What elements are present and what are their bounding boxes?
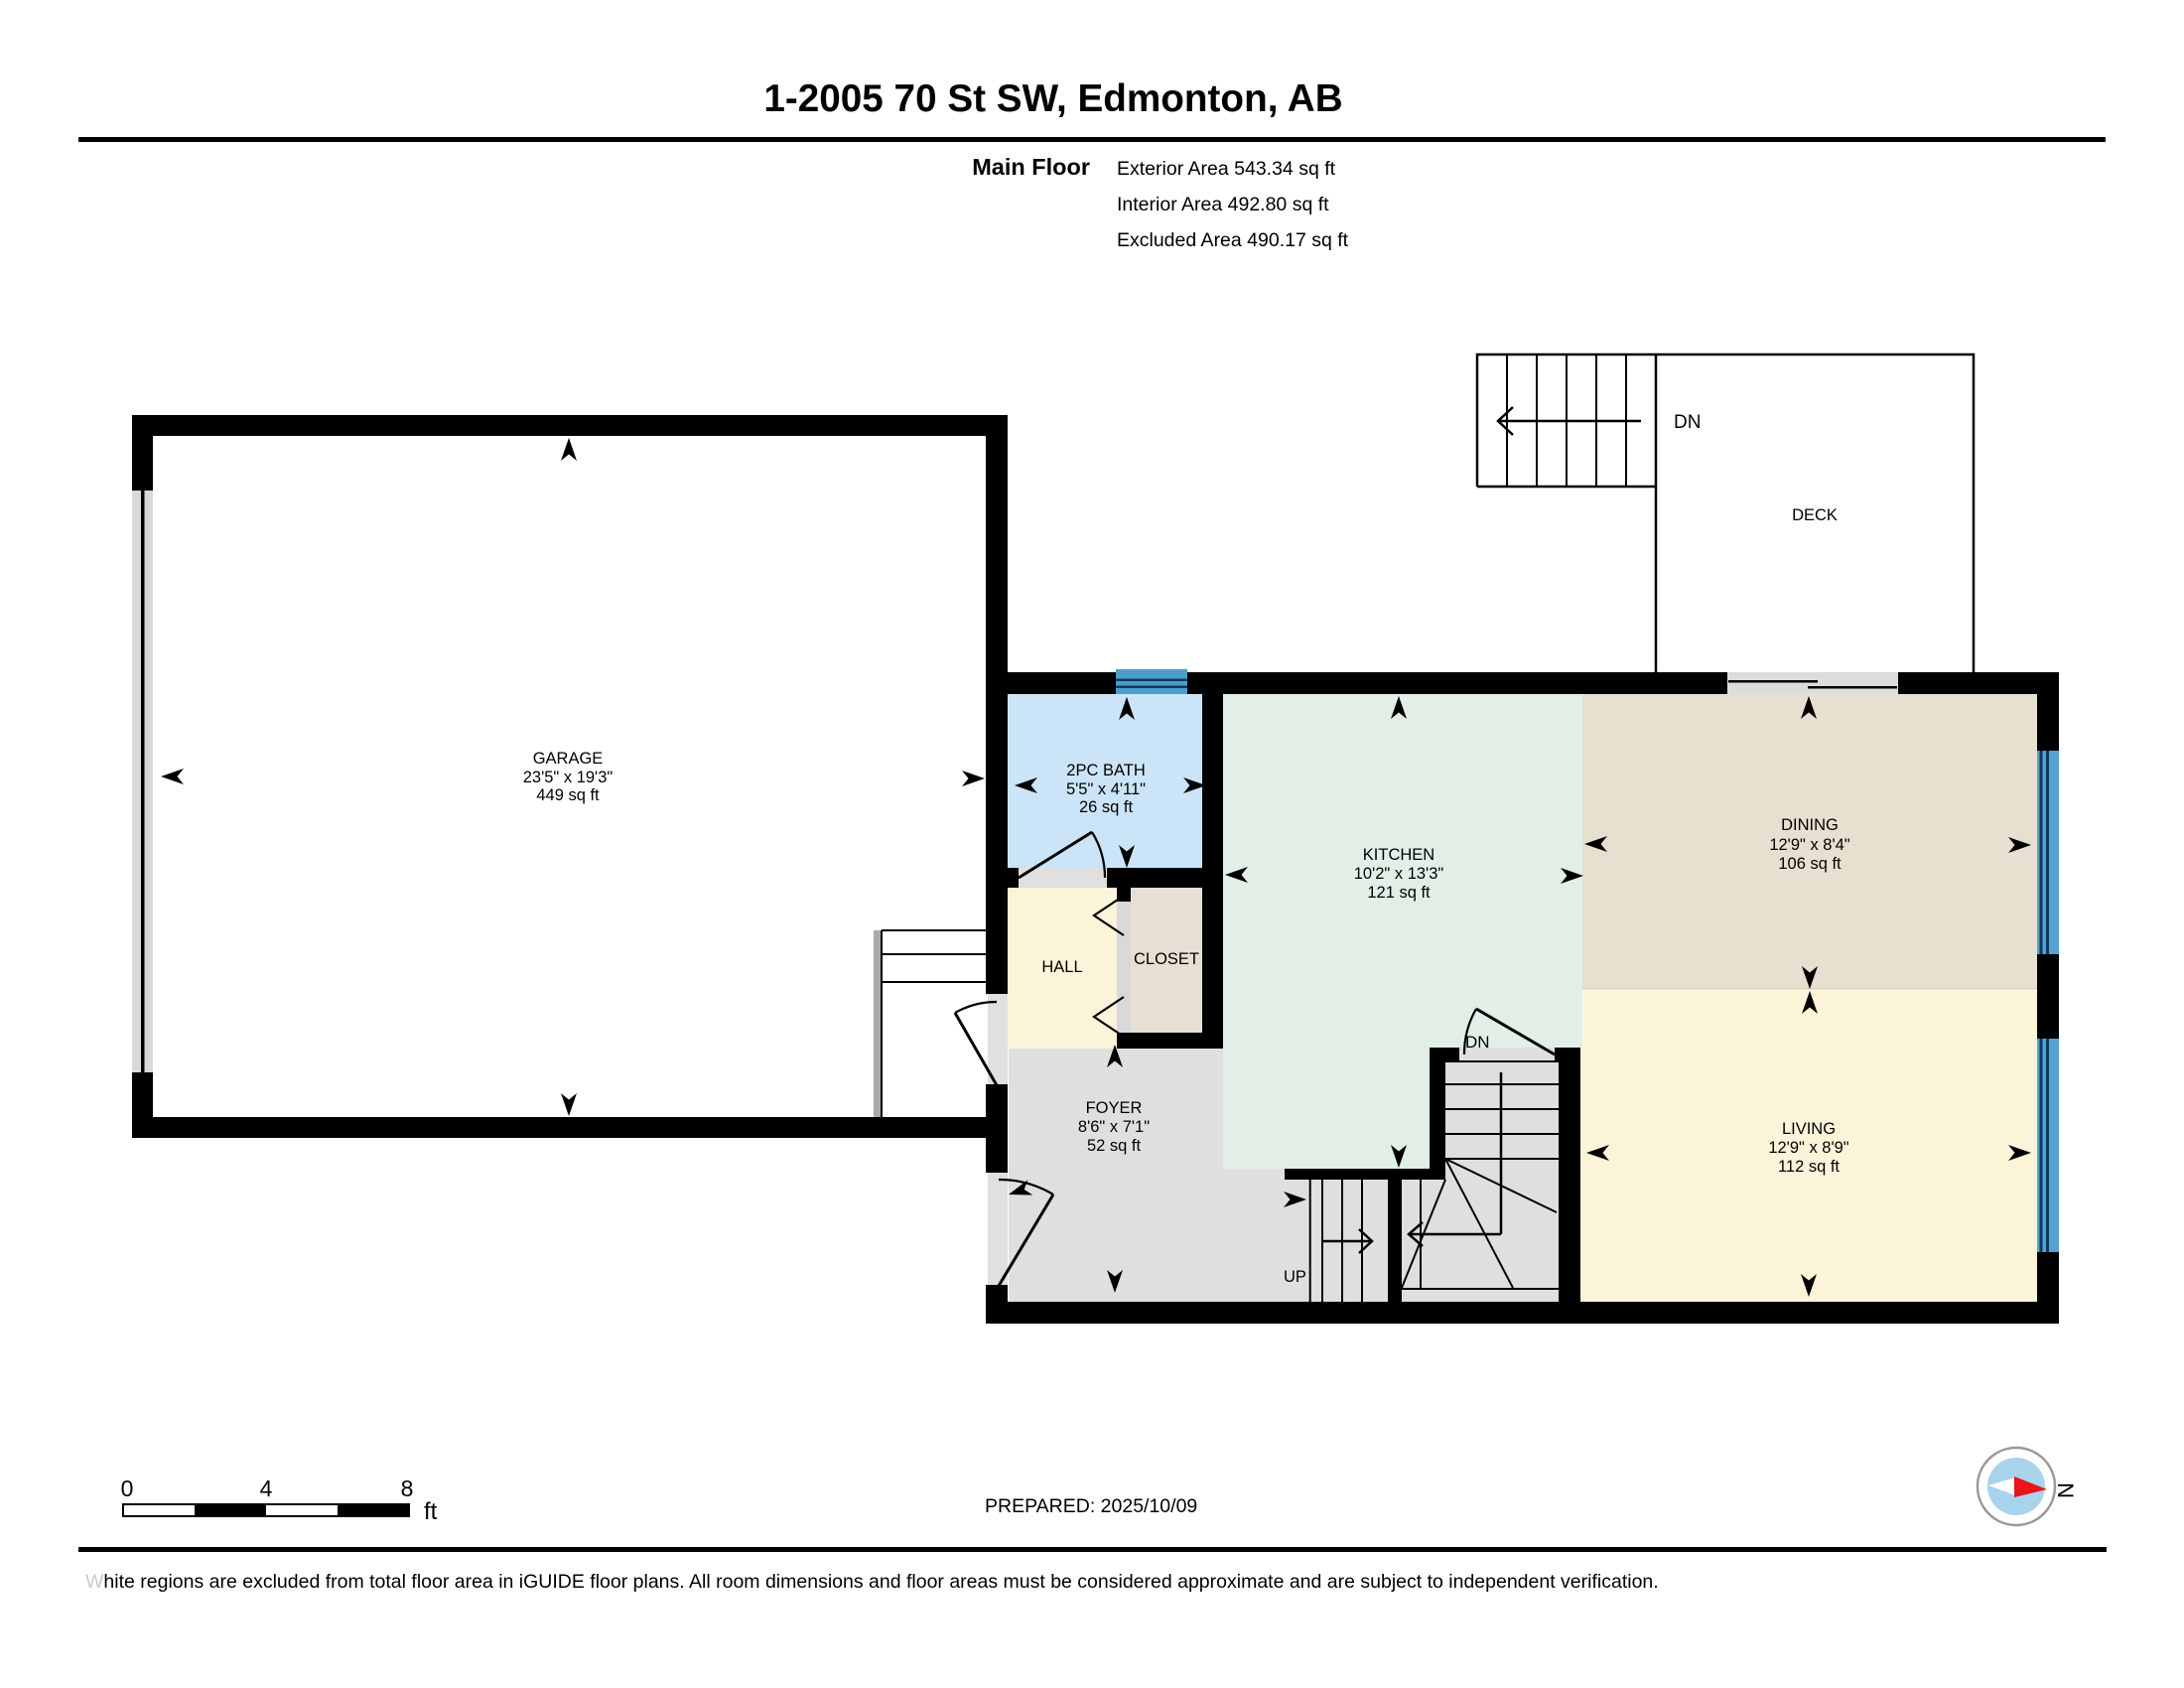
svg-text:UP: UP — [1284, 1268, 1306, 1286]
svg-text:Excluded Area 490.17 sq ft: Excluded Area 490.17 sq ft — [1117, 229, 1349, 251]
svg-text:106 sq ft: 106 sq ft — [1778, 855, 1842, 873]
svg-text:LIVING: LIVING — [1782, 1120, 1836, 1138]
svg-text:52 sq ft: 52 sq ft — [1087, 1137, 1142, 1155]
svg-text:112 sq ft: 112 sq ft — [1778, 1158, 1840, 1176]
svg-text:DN: DN — [1674, 412, 1701, 433]
svg-text:5'5" x 4'11": 5'5" x 4'11" — [1066, 780, 1146, 798]
svg-text:N: N — [2053, 1482, 2078, 1498]
svg-text:26 sq ft: 26 sq ft — [1079, 798, 1134, 816]
svg-text:Exterior Area 543.34 sq ft: Exterior Area 543.34 sq ft — [1117, 158, 1336, 180]
svg-text:12'9" x 8'4": 12'9" x 8'4" — [1769, 836, 1849, 854]
svg-text:FOYER: FOYER — [1086, 1099, 1143, 1117]
svg-text:DN: DN — [1465, 1033, 1490, 1052]
svg-text:23'5" x 19'3": 23'5" x 19'3" — [523, 769, 614, 786]
svg-text:4: 4 — [260, 1476, 273, 1501]
svg-text:449 sq ft: 449 sq ft — [536, 786, 600, 804]
svg-text:Interior Area 492.80 sq ft: Interior Area 492.80 sq ft — [1117, 194, 1329, 215]
svg-text:1-2005 70 St SW, Edmonton, AB: 1-2005 70 St SW, Edmonton, AB — [763, 77, 1342, 120]
svg-text:10'2" x 13'3": 10'2" x 13'3" — [1354, 865, 1444, 883]
svg-text:12'9" x 8'9": 12'9" x 8'9" — [1768, 1139, 1848, 1157]
svg-text:Main Floor: Main Floor — [972, 154, 1090, 180]
svg-text:GARAGE: GARAGE — [533, 750, 604, 768]
svg-text:PREPARED: 2025/10/09: PREPARED: 2025/10/09 — [985, 1495, 1197, 1517]
svg-text:ft: ft — [424, 1498, 438, 1525]
svg-text:0: 0 — [121, 1476, 134, 1501]
svg-text:KITCHEN: KITCHEN — [1363, 846, 1434, 864]
svg-text:HALL: HALL — [1041, 958, 1082, 976]
svg-text:121 sq ft: 121 sq ft — [1367, 884, 1431, 902]
svg-text:CLOSET: CLOSET — [1134, 950, 1199, 968]
svg-text:8'6" x 7'1": 8'6" x 7'1" — [1078, 1118, 1150, 1136]
svg-text:DINING: DINING — [1781, 816, 1839, 834]
svg-text:DECK: DECK — [1792, 506, 1838, 524]
svg-text:2PC BATH: 2PC BATH — [1066, 762, 1145, 779]
svg-text:8: 8 — [401, 1476, 414, 1501]
svg-text:White regions are excluded fro: White regions are excluded from total fl… — [85, 1571, 1659, 1593]
